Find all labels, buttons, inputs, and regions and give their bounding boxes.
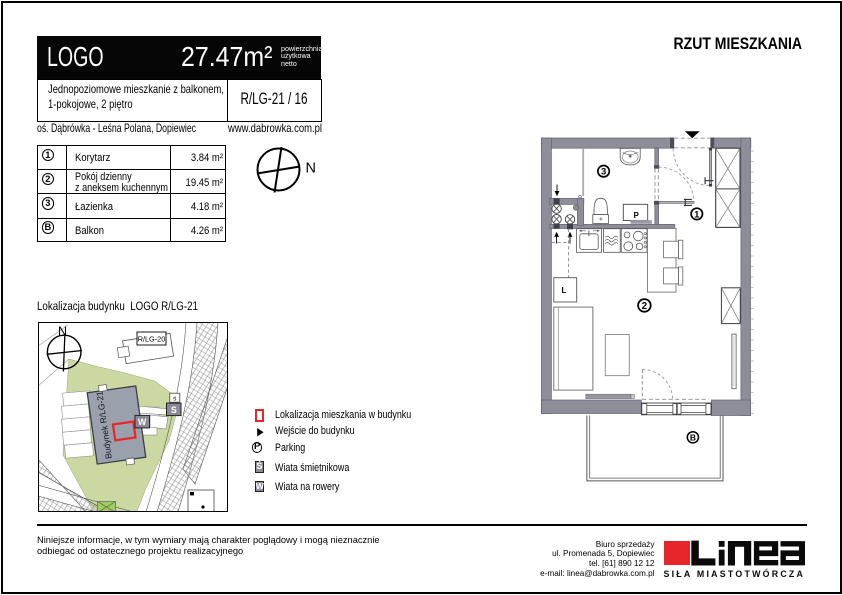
svg-text:R/LG-20: R/LG-20 xyxy=(137,335,165,344)
svg-text:2: 2 xyxy=(642,301,648,312)
svg-text:L: L xyxy=(562,286,567,295)
svg-text:N: N xyxy=(306,161,316,177)
svg-text:S: S xyxy=(170,405,176,415)
svg-text:1: 1 xyxy=(694,209,700,220)
svg-text:B: B xyxy=(690,433,696,443)
svg-text:P: P xyxy=(634,211,639,220)
svg-text:N: N xyxy=(58,324,67,338)
svg-text:3: 3 xyxy=(601,167,606,178)
svg-text:W: W xyxy=(138,417,147,427)
